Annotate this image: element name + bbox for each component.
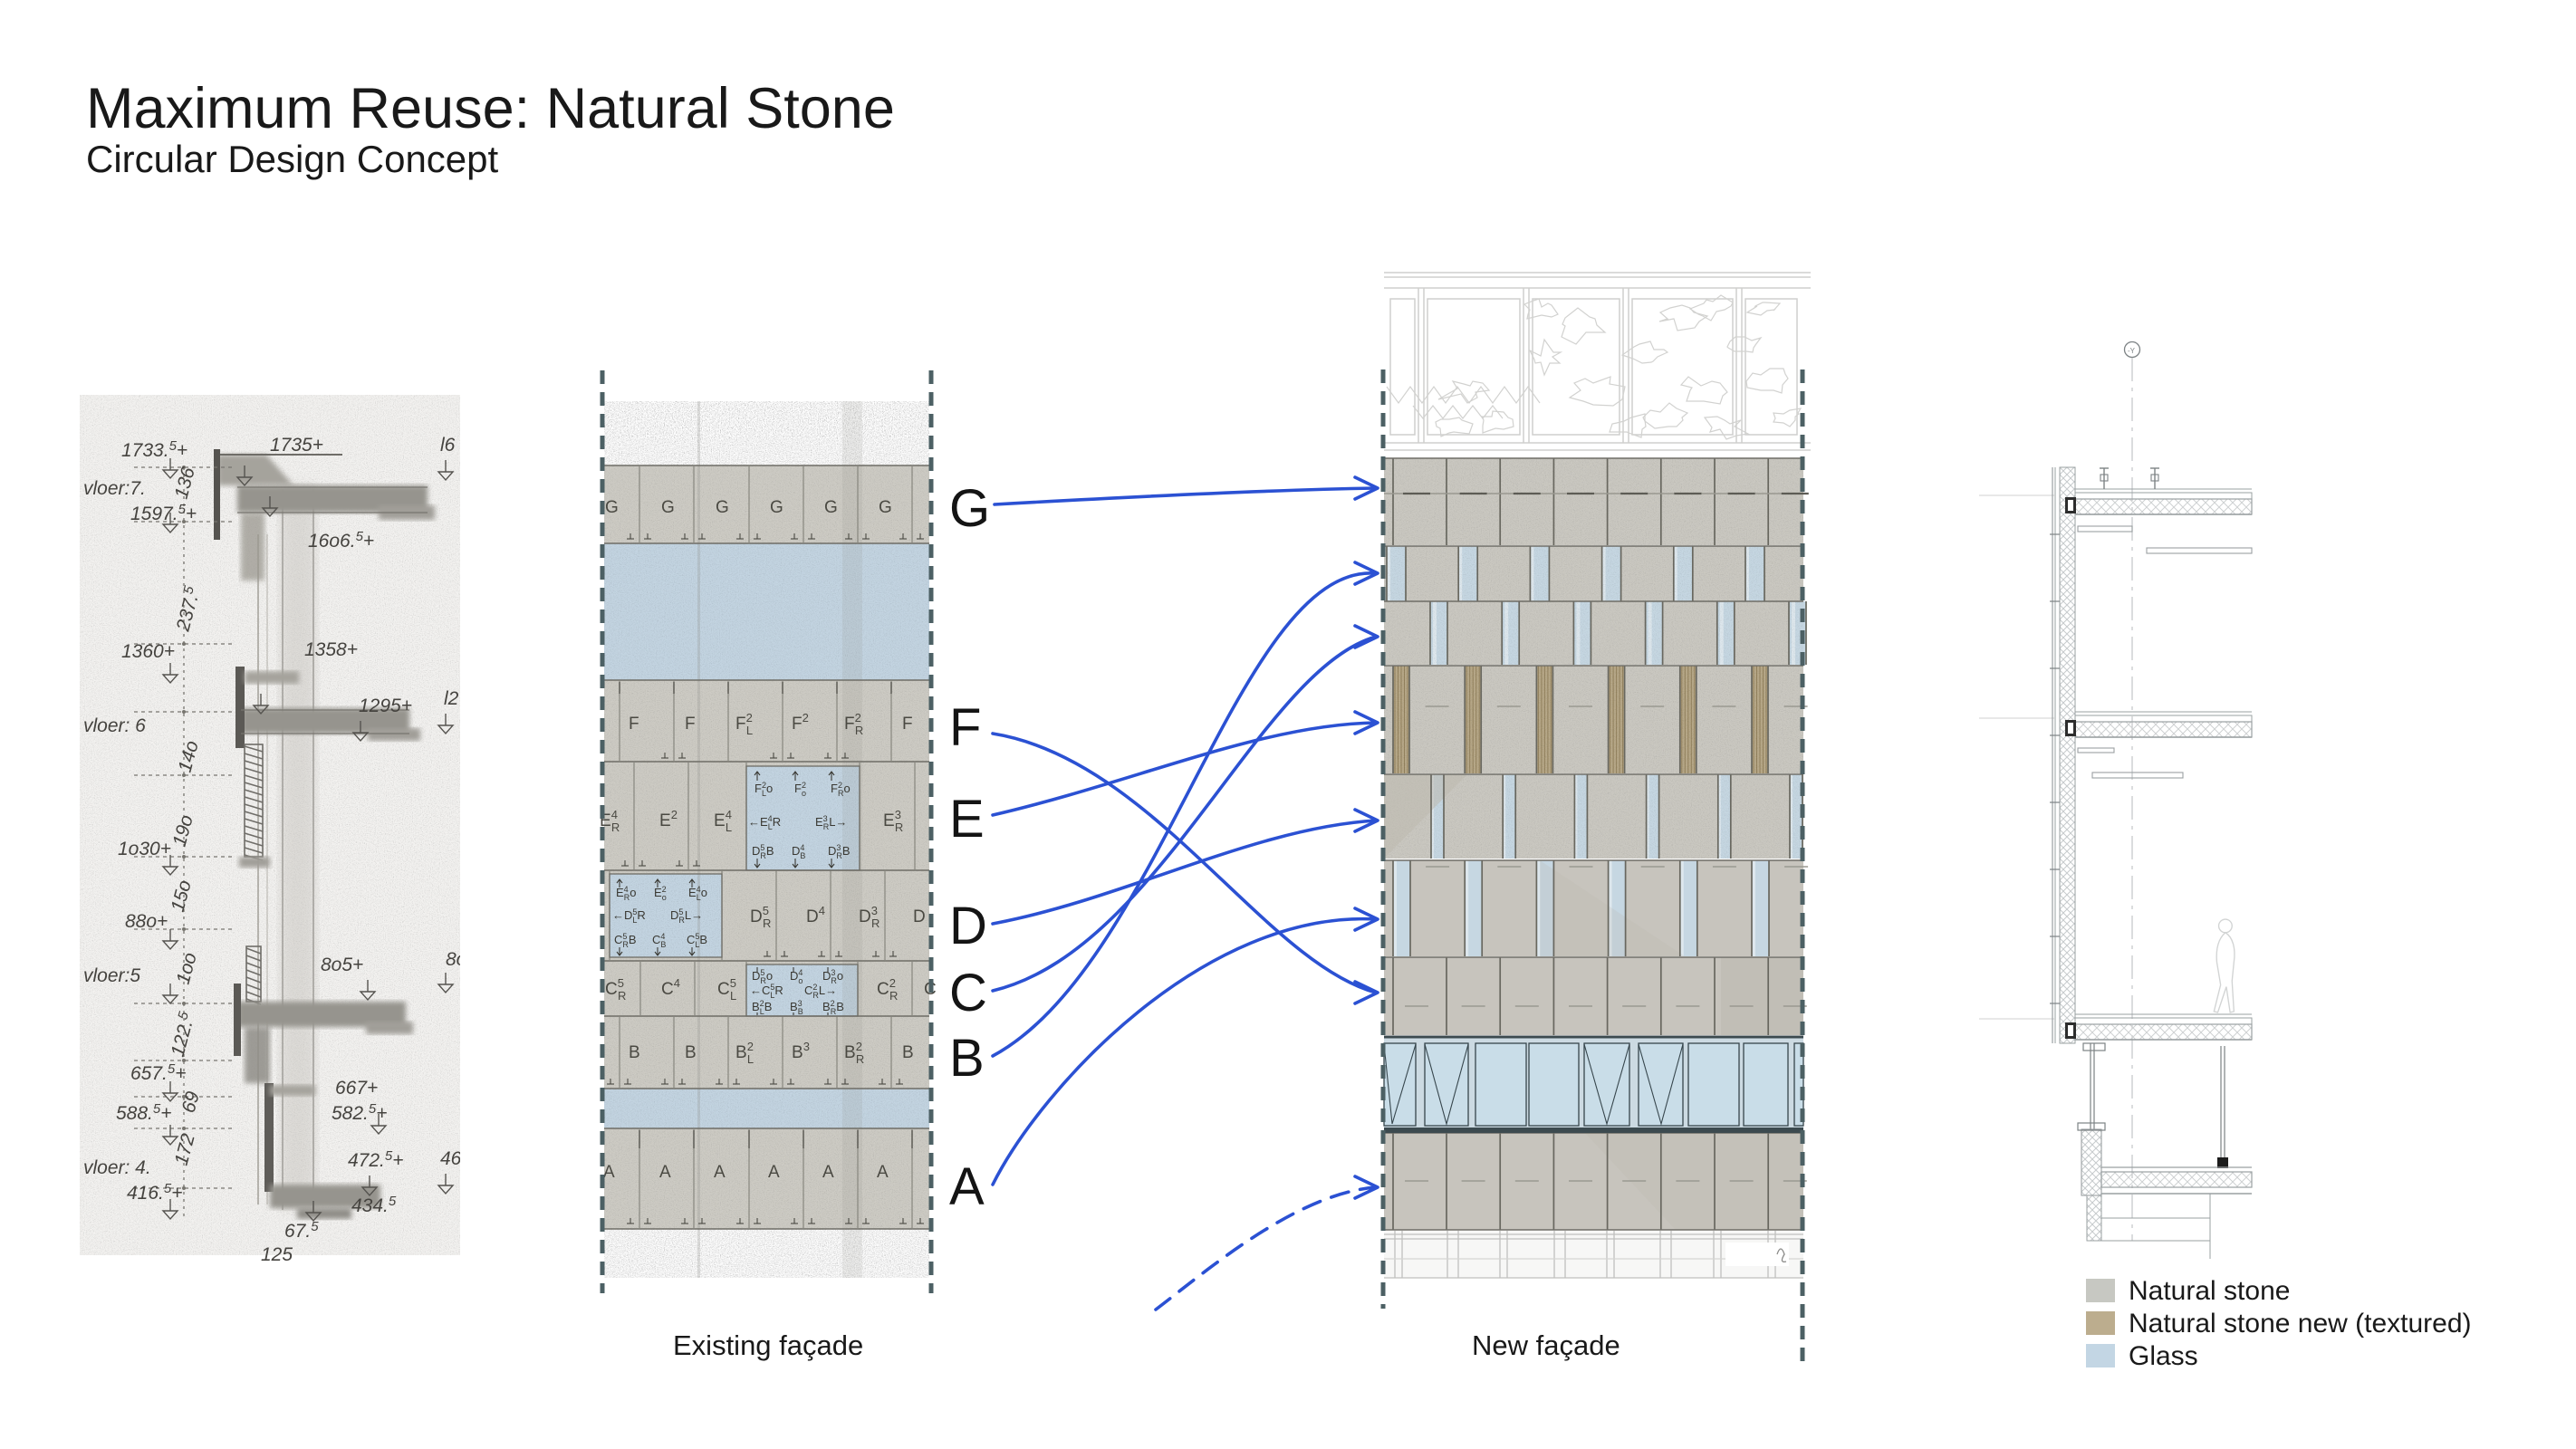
svg-text:1360+: 1360+ — [121, 641, 175, 662]
svg-text:472.5+: 472.5+ — [348, 1148, 403, 1171]
svg-text:416.5+: 416.5+ — [127, 1181, 182, 1204]
svg-text:1295+: 1295+ — [359, 696, 412, 716]
svg-text:C5L: C5L — [717, 976, 736, 1003]
svg-text:1o30+: 1o30+ — [118, 839, 171, 859]
svg-text:B2L: B2L — [735, 1040, 754, 1066]
svg-text:8o5+: 8o5+ — [321, 955, 363, 975]
svg-text:A: A — [603, 1163, 615, 1182]
svg-text:D5R: D5R — [750, 904, 771, 930]
svg-text:G: G — [605, 498, 619, 517]
svg-text:vloer:5: vloer:5 — [83, 965, 140, 986]
svg-text:16o6.5+: 16o6.5+ — [308, 529, 374, 552]
svg-text:l6: l6 — [440, 435, 456, 456]
svg-text:667+: 667+ — [335, 1078, 378, 1099]
svg-text:D: D — [913, 907, 926, 926]
svg-text:C2R: C2R — [877, 976, 898, 1003]
svg-text:588.5+: 588.5+ — [116, 1101, 171, 1124]
svg-text:F: F — [902, 715, 913, 734]
svg-text:46: 46 — [440, 1148, 460, 1169]
svg-text:A: A — [822, 1163, 834, 1182]
svg-text:C5R: C5R — [605, 976, 626, 1003]
svg-text:F: F — [685, 715, 696, 734]
svg-text:-Y: -Y — [2128, 347, 2136, 355]
svg-text:1735+: 1735+ — [270, 435, 323, 456]
svg-text:F2R: F2R — [844, 711, 863, 737]
svg-text:l2: l2 — [444, 688, 459, 709]
svg-text:F2L: F2L — [735, 711, 753, 737]
svg-text:8o: 8o — [446, 949, 460, 970]
svg-text:1597.5+: 1597.5+ — [130, 502, 197, 524]
svg-text:B: B — [902, 1043, 914, 1062]
svg-text:E4L: E4L — [714, 808, 732, 834]
svg-text:B2R: B2R — [844, 1040, 864, 1066]
svg-text:E3R: E3R — [883, 808, 903, 834]
svg-text:D3R: D3R — [859, 904, 879, 930]
svg-text:G: G — [770, 498, 783, 517]
svg-text:A: A — [714, 1163, 726, 1182]
svg-text:F: F — [629, 715, 639, 734]
svg-text:G: G — [716, 498, 729, 517]
svg-text:G: G — [824, 498, 838, 517]
svg-text:G: G — [879, 498, 892, 517]
svg-text:vloer:7.: vloer:7. — [83, 478, 146, 499]
svg-text:vloer: 6: vloer: 6 — [83, 715, 146, 736]
svg-text:A: A — [877, 1163, 889, 1182]
svg-text:657.5+: 657.5+ — [130, 1061, 186, 1084]
svg-text:vloer: 4.: vloer: 4. — [83, 1157, 151, 1178]
svg-text:B: B — [629, 1043, 640, 1062]
svg-text:1358+: 1358+ — [304, 639, 358, 660]
svg-text:A: A — [659, 1163, 671, 1182]
svg-text:1733.5+: 1733.5+ — [121, 438, 187, 461]
svg-text:G: G — [661, 498, 675, 517]
svg-text:B: B — [685, 1043, 697, 1062]
svg-text:A: A — [768, 1163, 780, 1182]
svg-text:125: 125 — [261, 1244, 293, 1265]
svg-text:88o+: 88o+ — [125, 911, 168, 932]
